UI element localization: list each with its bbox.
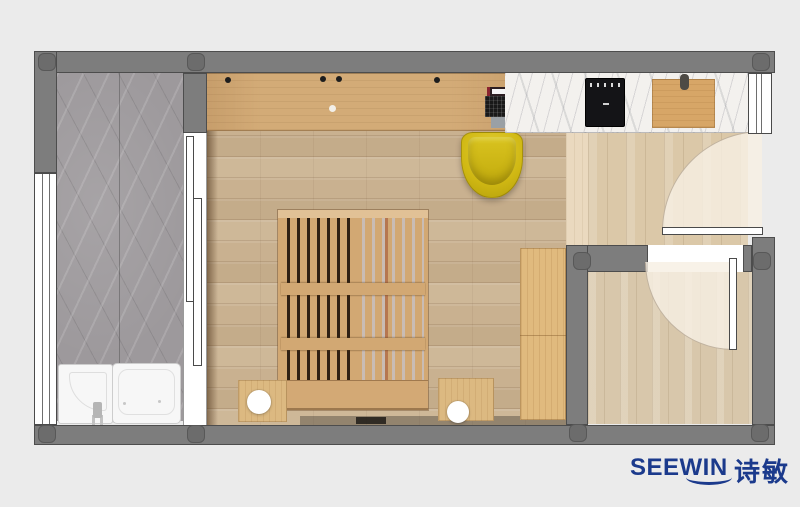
shower-tray <box>58 364 113 424</box>
pillar-bottom-mid-right <box>569 424 587 442</box>
brand-logo-swoosh <box>686 470 732 485</box>
lamp-left <box>247 390 271 414</box>
cutting-board-handle <box>680 74 689 90</box>
bathtub-drain-dot-2 <box>158 400 161 403</box>
wall-balcony-spur <box>183 73 207 133</box>
pillar-top-right <box>752 53 770 71</box>
wardrobe <box>520 248 566 420</box>
bed-head-rail <box>278 210 428 218</box>
bathtub <box>112 363 181 424</box>
pillar-bottom-mid-left <box>187 425 205 443</box>
pillar-bottom-left <box>38 425 56 443</box>
wall-top <box>34 51 775 73</box>
desk-chair-seat <box>468 137 516 185</box>
left-window <box>34 173 57 425</box>
bed-shadow-dark <box>356 417 386 424</box>
bed-footboard <box>278 380 428 410</box>
desk-knob-3 <box>336 76 342 82</box>
brand-logo-cjk: 诗敏 <box>734 452 790 489</box>
desk-knob-4 <box>434 77 440 83</box>
cooktop-controls <box>590 83 620 87</box>
desk-counter <box>207 73 505 131</box>
right-window-mullion-1 <box>756 74 757 133</box>
pillar-bottom-right <box>751 424 769 442</box>
bathtub-basin <box>118 369 175 415</box>
bed-slats-right <box>362 218 424 380</box>
brand-logo: SEEWIN 诗敏 <box>630 452 795 497</box>
entry-door-leaf <box>729 258 737 350</box>
sliding-door-leaf-b <box>193 198 202 366</box>
desk-knob-1 <box>225 77 231 83</box>
cooktop-center-mark <box>603 103 609 105</box>
right-window <box>748 73 772 134</box>
wardrobe-seam <box>520 335 566 336</box>
entry-wall-left <box>566 245 588 425</box>
kitchen-threshold <box>566 133 588 246</box>
left-window-mullion-1 <box>42 174 43 424</box>
pillar-entry-corner-right <box>753 252 771 270</box>
bathtub-drain-dot-1 <box>123 402 126 405</box>
wall-bottom <box>34 425 775 445</box>
right-window-mullion-2 <box>761 74 762 133</box>
bed-cross-rail-2 <box>281 338 425 350</box>
desk-white-dot <box>329 105 336 112</box>
bed-cross-rail-1 <box>281 283 425 295</box>
bed-slats-left <box>287 218 355 380</box>
desk-knob-2 <box>320 76 326 82</box>
left-window-mullion-2 <box>49 174 50 424</box>
pillar-entry-corner-left <box>573 252 591 270</box>
pillar-top-mid <box>187 53 205 71</box>
kitchen-door-leaf <box>662 227 763 235</box>
cooktop <box>585 78 625 127</box>
entry-wall-top-right <box>743 245 752 272</box>
lamp-right <box>447 401 469 423</box>
pillar-top-left <box>38 53 56 71</box>
faucet-icon <box>93 402 102 418</box>
floorplan-image: SEEWIN 诗敏 <box>0 0 800 507</box>
